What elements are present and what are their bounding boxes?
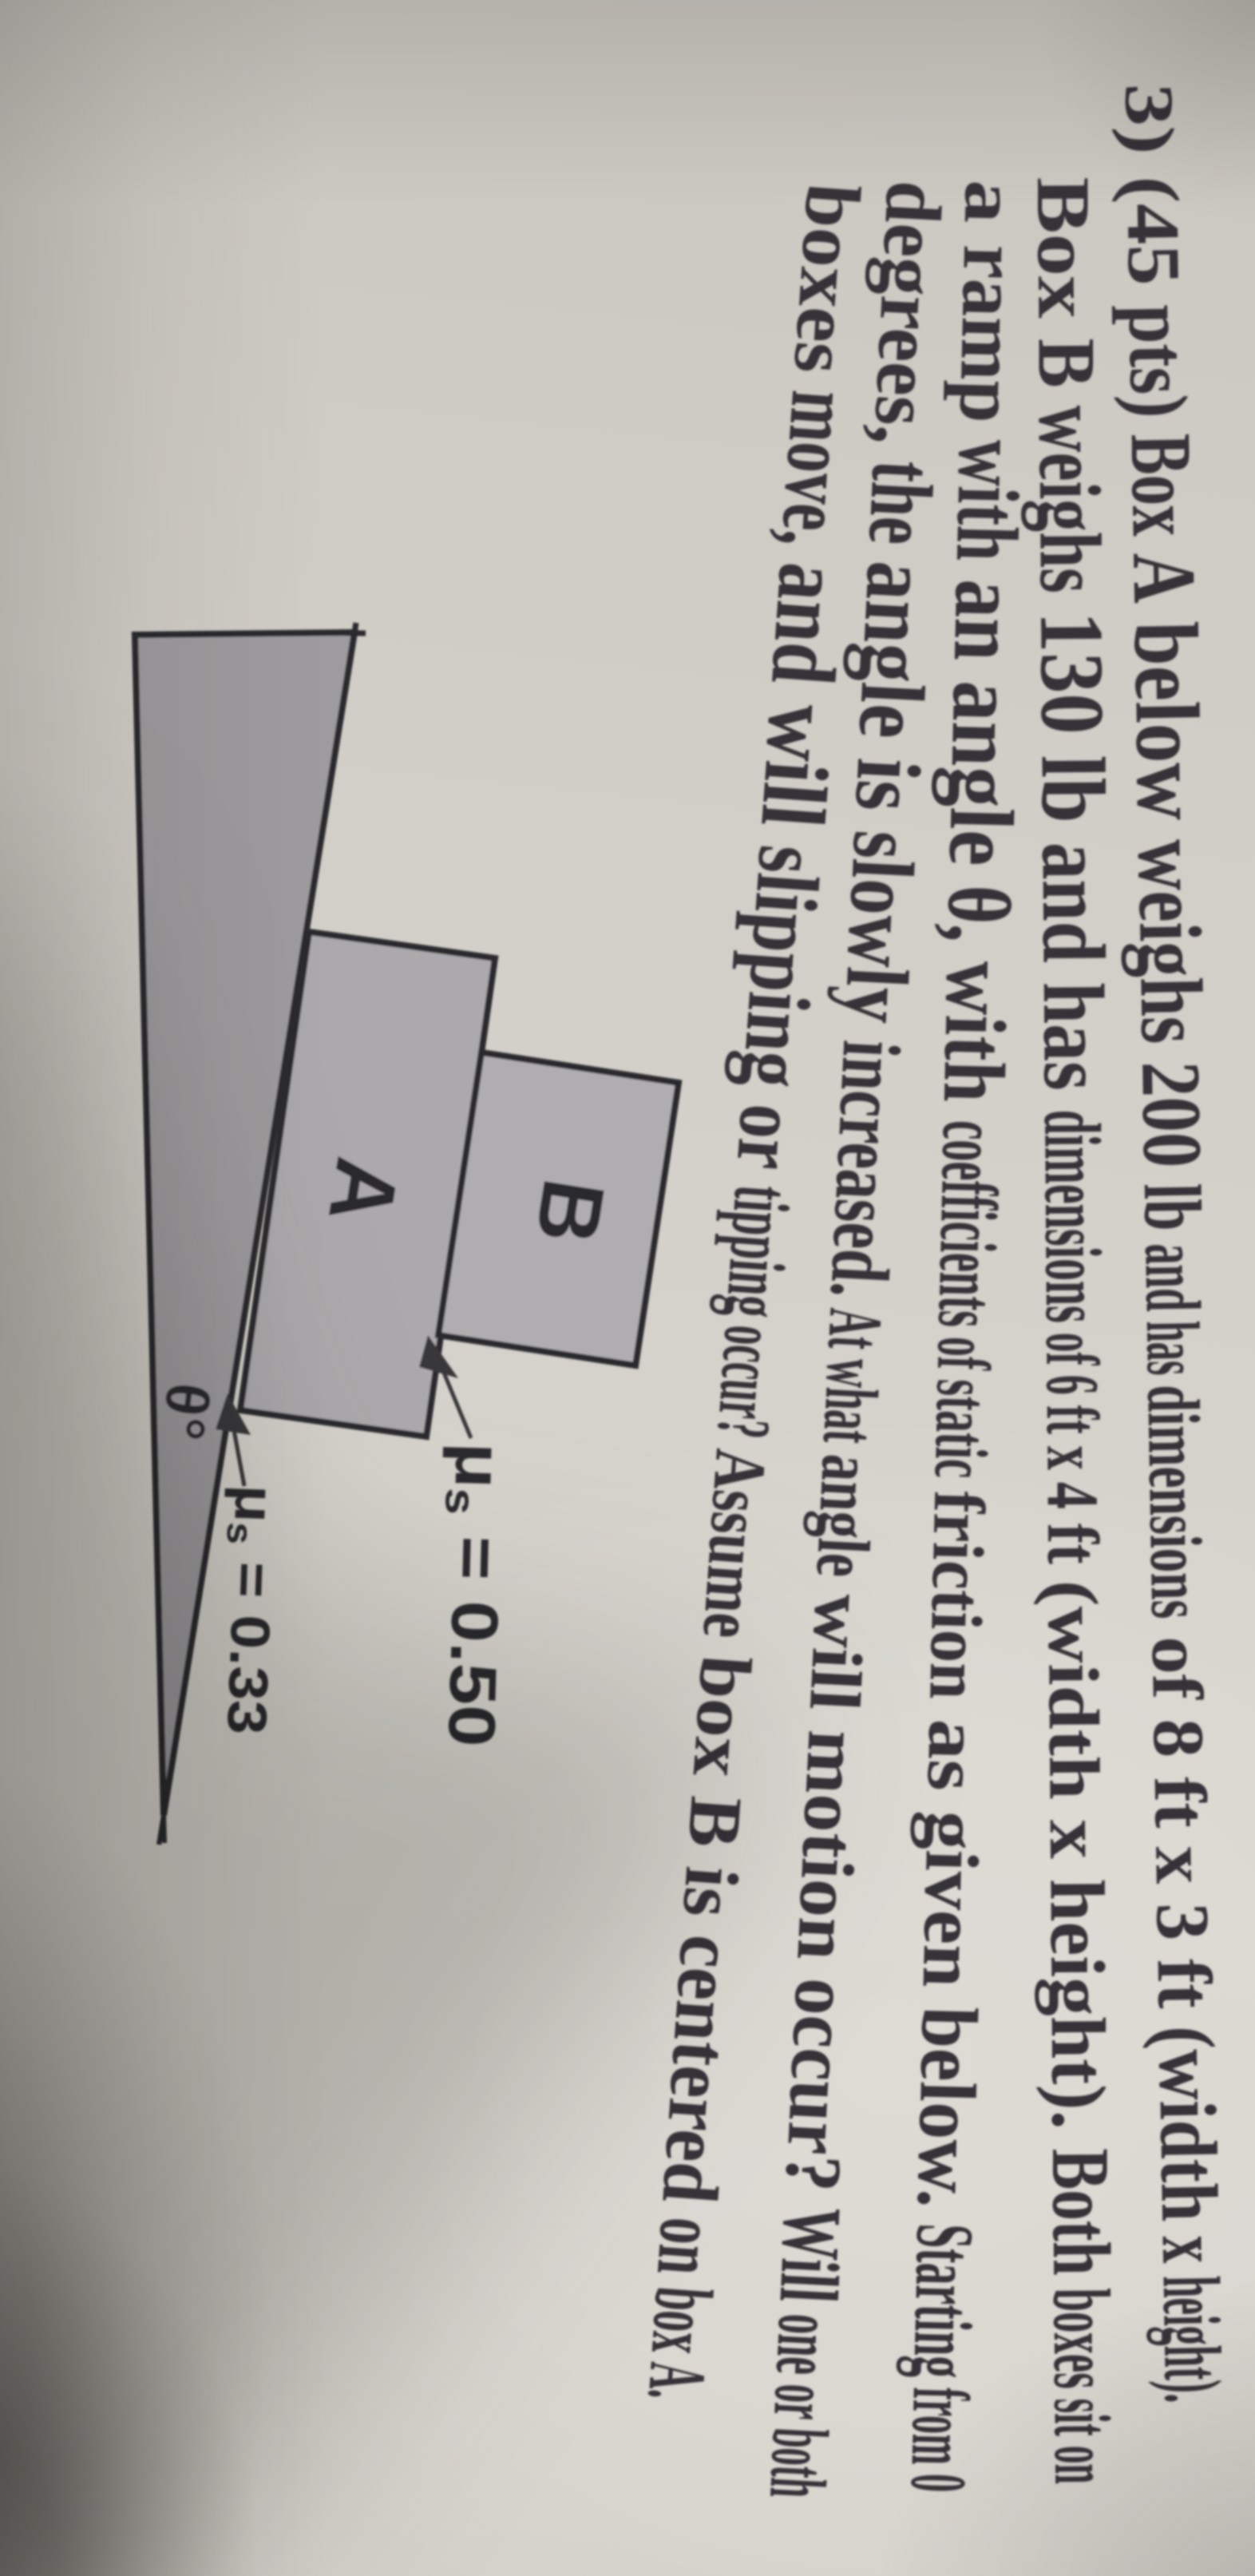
svg-text:ft: ft bbox=[1032, 1523, 1114, 1564]
svg-text:of: of bbox=[1137, 1635, 1217, 1701]
svg-text:occur?: occur? bbox=[768, 1976, 867, 2194]
svg-text:below: below bbox=[1115, 620, 1220, 821]
svg-text:dimensions: dimensions bbox=[1131, 1384, 1217, 1619]
svg-text:tipping: tipping bbox=[709, 1183, 807, 1321]
svg-text:(width: (width bbox=[1032, 1579, 1113, 1800]
svg-text:At: At bbox=[812, 1306, 899, 1351]
svg-text:and: and bbox=[752, 560, 862, 688]
svg-text:height).: height). bbox=[1145, 2275, 1237, 2404]
svg-text:with: with bbox=[938, 438, 1039, 562]
svg-text:boxes: boxes bbox=[1035, 2288, 1126, 2389]
svg-text:height).: height). bbox=[1034, 1878, 1121, 2130]
svg-text:of: of bbox=[1030, 1332, 1114, 1366]
svg-text:angle: angle bbox=[930, 680, 1035, 867]
svg-text:slipping: slipping bbox=[723, 842, 838, 1091]
svg-text:A: A bbox=[1114, 552, 1214, 604]
svg-text:static: static bbox=[919, 1378, 1004, 1479]
svg-text:an: an bbox=[935, 578, 1038, 662]
svg-text:on: on bbox=[1038, 2445, 1126, 2484]
svg-text:B: B bbox=[671, 1793, 757, 1850]
svg-text:200: 200 bbox=[1124, 1060, 1219, 1168]
svg-text:from: from bbox=[895, 2387, 986, 2467]
svg-text:θ,: θ, bbox=[928, 884, 1029, 944]
svg-text:or: or bbox=[719, 1101, 817, 1172]
svg-text:x: x bbox=[1145, 2235, 1237, 2264]
svg-text:Both: Both bbox=[1035, 2148, 1126, 2276]
svg-text:coefficients: coefficients bbox=[921, 1120, 1015, 1329]
svg-text:pts): pts) bbox=[1111, 303, 1204, 418]
svg-text:μs = 0.33: μs = 0.33 bbox=[212, 1484, 287, 1735]
svg-text:ramp: ramp bbox=[943, 244, 1036, 424]
svg-text:below.: below. bbox=[901, 2006, 994, 2209]
svg-text:has: has bbox=[1025, 981, 1122, 1091]
svg-text:6: 6 bbox=[1031, 1374, 1115, 1395]
svg-text:has: has bbox=[1130, 1320, 1216, 1376]
svg-text:and: and bbox=[1128, 1242, 1215, 1312]
svg-text:with: with bbox=[925, 960, 1025, 1104]
svg-text:or: or bbox=[757, 2382, 848, 2422]
svg-text:x: x bbox=[1034, 1819, 1117, 1859]
svg-text:motion: motion bbox=[781, 1728, 875, 1962]
svg-text:ft: ft bbox=[1142, 1958, 1228, 2009]
svg-text:will: will bbox=[794, 1592, 879, 1713]
svg-text:lb: lb bbox=[1023, 755, 1125, 823]
svg-text:Box: Box bbox=[1113, 433, 1211, 537]
svg-text:ft: ft bbox=[1031, 1405, 1114, 1434]
svg-text:sit: sit bbox=[1037, 2398, 1126, 2436]
svg-text:3): 3) bbox=[1110, 83, 1190, 156]
svg-text:Assume: Assume bbox=[687, 1446, 782, 1641]
svg-text:Starting: Starting bbox=[896, 2223, 991, 2380]
svg-text:ft: ft bbox=[1138, 1776, 1221, 1829]
svg-text:(45: (45 bbox=[1110, 176, 1195, 287]
svg-text:x: x bbox=[1031, 1445, 1113, 1470]
svg-text:on: on bbox=[639, 2215, 735, 2278]
svg-text:as: as bbox=[912, 1718, 995, 1792]
svg-text:slowly: slowly bbox=[825, 829, 933, 1026]
svg-text:move,: move, bbox=[762, 388, 870, 550]
svg-text:box: box bbox=[634, 2285, 730, 2357]
svg-text:a: a bbox=[949, 180, 1031, 224]
svg-text:(width: (width bbox=[1142, 2025, 1234, 2222]
svg-text:is: is bbox=[667, 1864, 754, 1920]
svg-text:given: given bbox=[907, 1810, 996, 1988]
svg-text:boxes: boxes bbox=[778, 180, 877, 376]
svg-text:Will: Will bbox=[762, 2205, 858, 2305]
svg-text:friction: friction bbox=[914, 1490, 1000, 1700]
svg-text:4: 4 bbox=[1031, 1481, 1114, 1509]
svg-text:will: will bbox=[742, 701, 852, 831]
svg-text:x: x bbox=[1139, 1845, 1223, 1884]
svg-text:0: 0 bbox=[894, 2473, 984, 2494]
svg-text:and: and bbox=[1023, 842, 1122, 963]
svg-text:angle: angle bbox=[800, 1452, 889, 1579]
svg-text:increased.: increased. bbox=[813, 1038, 917, 1299]
svg-text:weighs: weighs bbox=[1118, 838, 1220, 1044]
svg-text:one: one bbox=[758, 2312, 852, 2377]
svg-text:box: box bbox=[678, 1653, 767, 1780]
svg-text:occur?: occur? bbox=[701, 1323, 794, 1441]
svg-text:dimensions: dimensions bbox=[1027, 1109, 1118, 1323]
svg-text:3: 3 bbox=[1140, 1902, 1225, 1941]
svg-text:what: what bbox=[807, 1357, 894, 1445]
svg-text:both: both bbox=[753, 2426, 845, 2500]
svg-text:8: 8 bbox=[1138, 1718, 1219, 1758]
svg-text:θ°: θ° bbox=[148, 1379, 222, 1444]
svg-text:lb: lb bbox=[1126, 1183, 1217, 1231]
svg-text:centered: centered bbox=[645, 1932, 751, 2206]
svg-text:of: of bbox=[921, 1336, 1007, 1371]
svg-text:is: is bbox=[836, 756, 940, 814]
svg-text:μs = 0.50: μs = 0.50 bbox=[430, 1441, 516, 1747]
svg-text:A.: A. bbox=[631, 2360, 723, 2403]
